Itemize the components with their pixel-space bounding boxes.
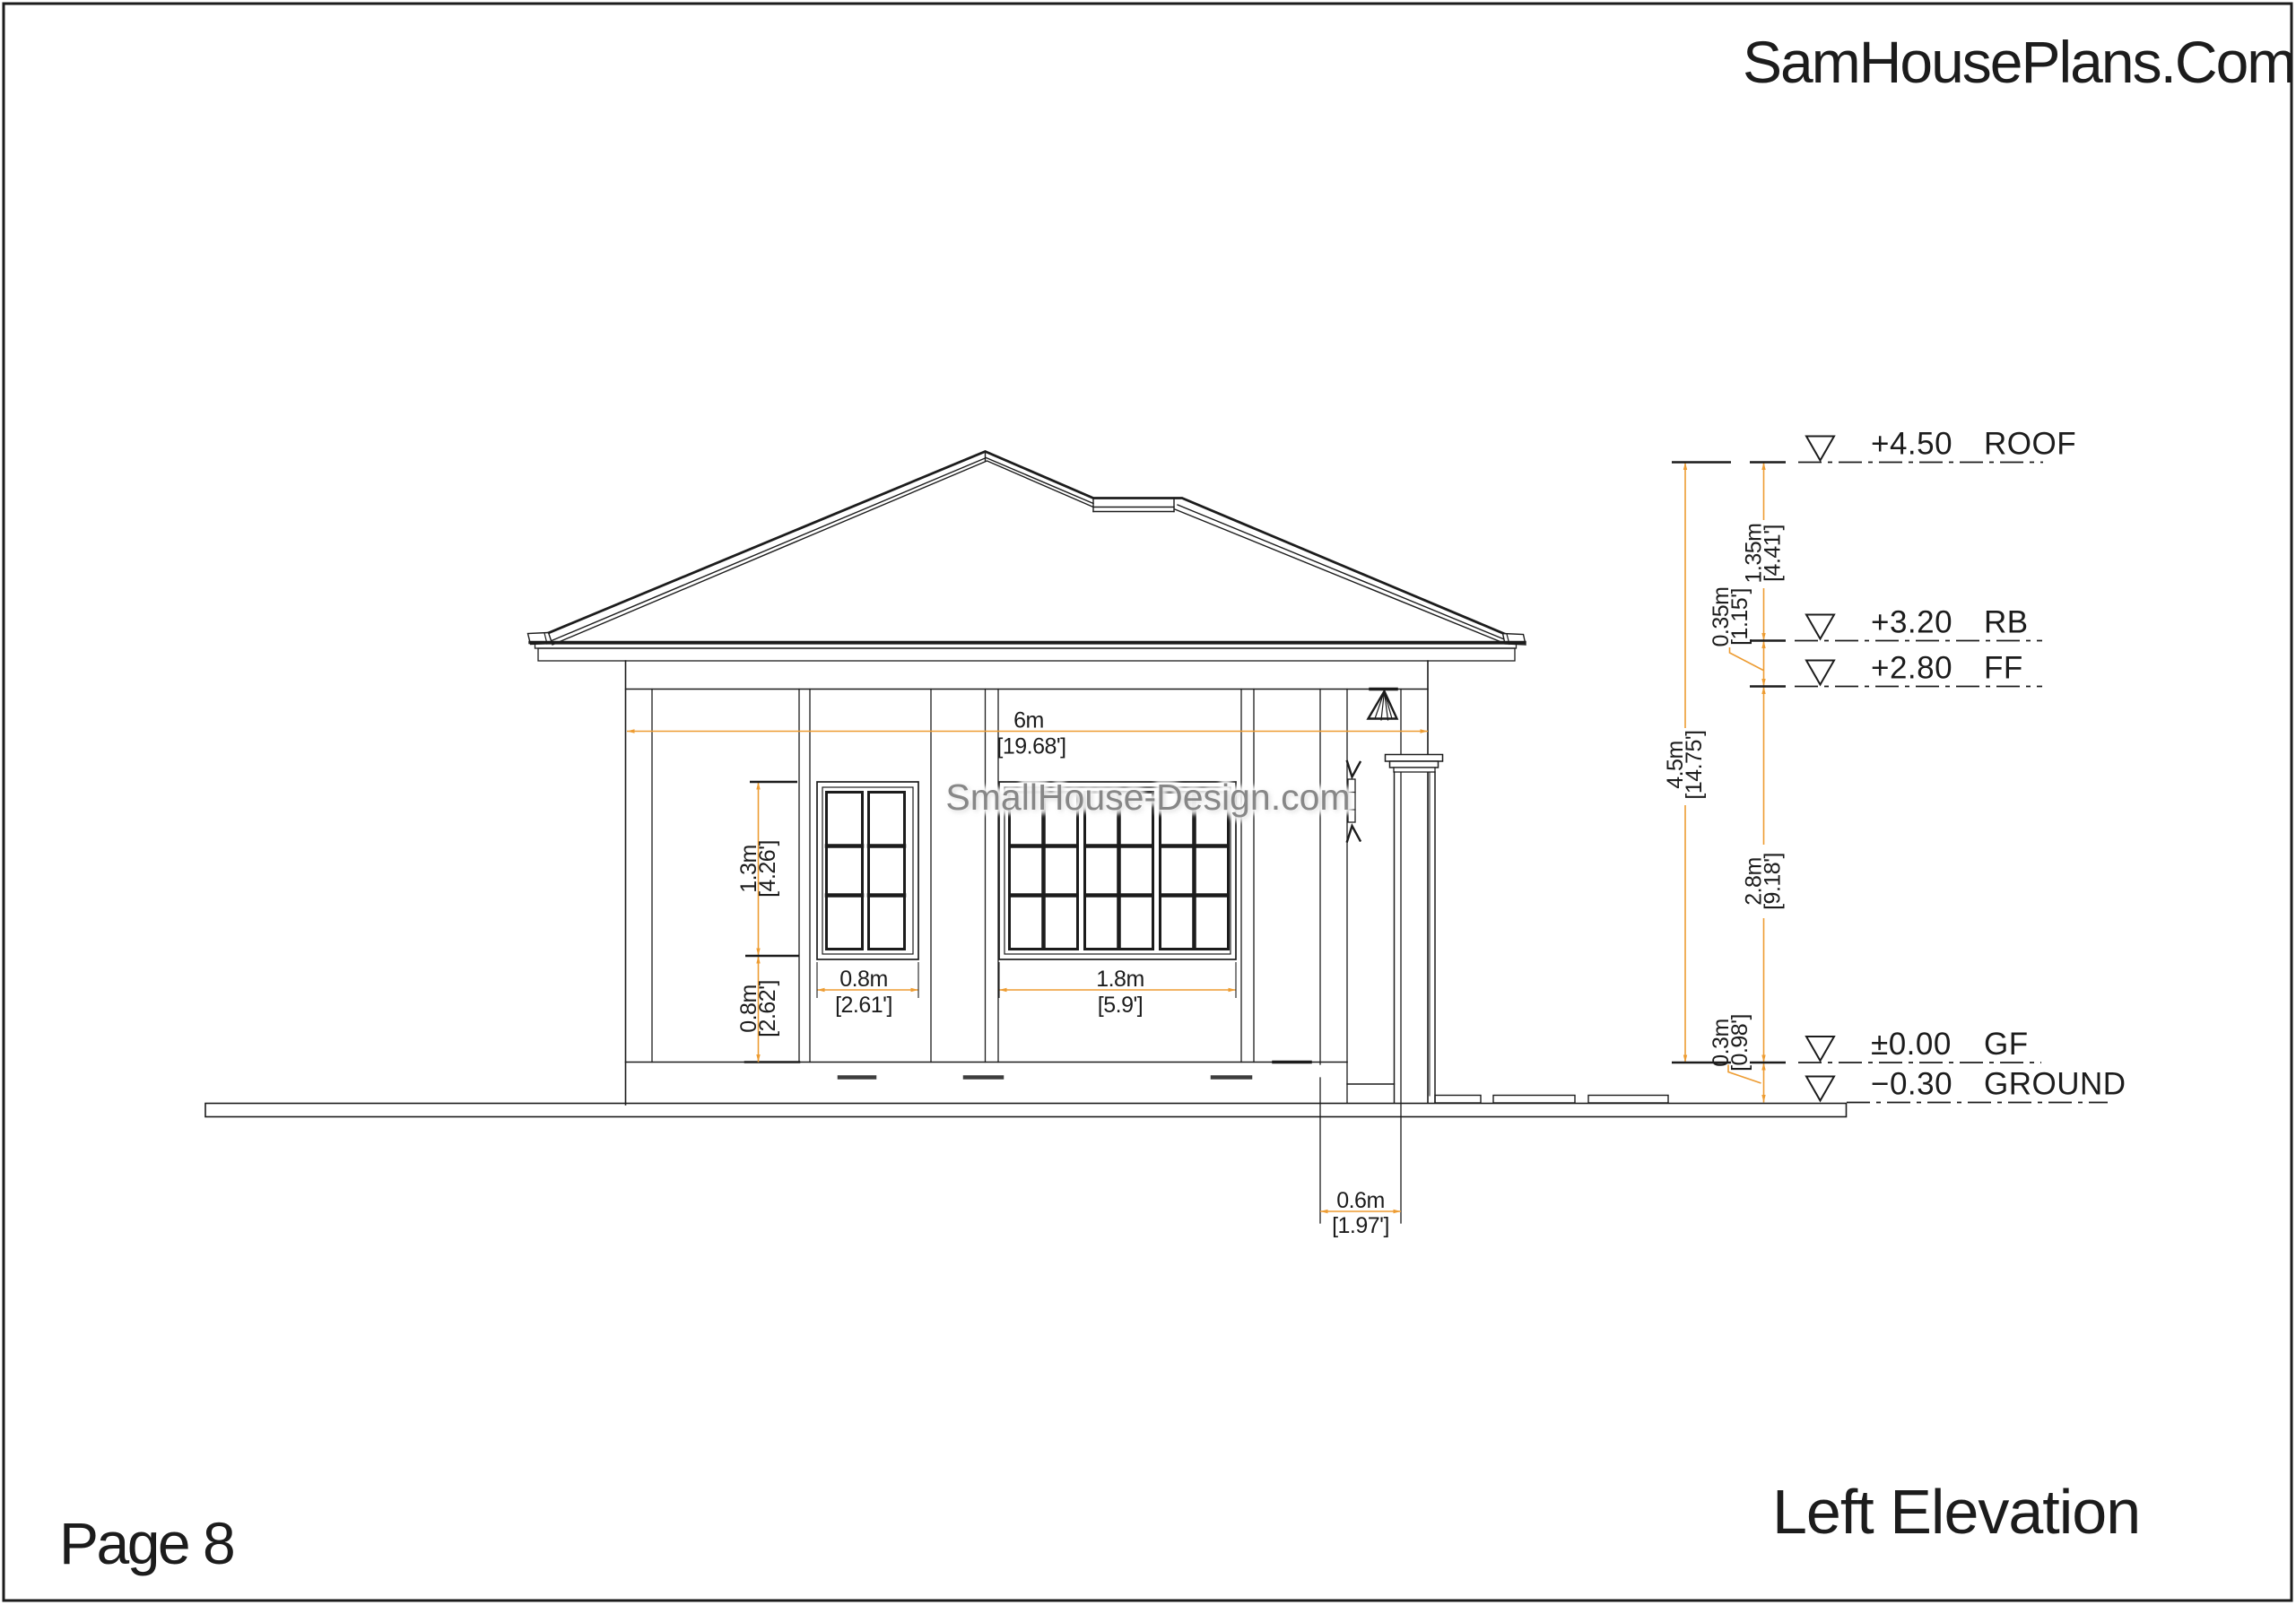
svg-text:Page 8: Page 8 [59, 1510, 233, 1576]
svg-text:[9.18']: [9.18'] [1761, 853, 1786, 910]
svg-text:±0.00: ±0.00 [1871, 1027, 1952, 1062]
svg-text:SamHousePlans.Com: SamHousePlans.Com [1743, 29, 2294, 95]
svg-text:[5.9']: [5.9'] [1098, 993, 1143, 1018]
svg-text:6m: 6m [1013, 708, 1044, 733]
svg-text:[2.61']: [2.61'] [835, 993, 892, 1018]
svg-text:[14.75']: [14.75'] [1682, 730, 1707, 799]
svg-text:[1.15']: [1.15'] [1727, 588, 1752, 646]
svg-text:−0.30: −0.30 [1871, 1067, 1952, 1102]
svg-text:RB: RB [1984, 605, 2029, 640]
svg-text:FF: FF [1984, 651, 2023, 686]
svg-text:+4.50: +4.50 [1871, 427, 1952, 462]
svg-text:SmallHouse-Design.com: SmallHouse-Design.com [945, 776, 1350, 818]
svg-text:1.8m: 1.8m [1096, 967, 1144, 992]
svg-text:GF: GF [1984, 1027, 2029, 1062]
svg-text:[1.97']: [1.97'] [1332, 1213, 1389, 1238]
svg-text:[4.41']: [4.41'] [1761, 525, 1786, 582]
svg-text:Left Elevation: Left Elevation [1772, 1477, 2140, 1547]
svg-text:GROUND: GROUND [1984, 1067, 2126, 1102]
svg-text:ROOF: ROOF [1984, 427, 2076, 462]
svg-text:[19.68']: [19.68'] [996, 734, 1065, 759]
svg-text:[4.26']: [4.26'] [755, 840, 780, 898]
svg-text:0.6m: 0.6m [1336, 1188, 1385, 1213]
svg-text:[0.98']: [0.98'] [1727, 1014, 1752, 1071]
svg-text:0.8m: 0.8m [839, 967, 888, 992]
svg-text:[2.62']: [2.62'] [755, 980, 780, 1037]
svg-text:+3.20: +3.20 [1871, 605, 1952, 640]
svg-text:+2.80: +2.80 [1871, 651, 1952, 686]
